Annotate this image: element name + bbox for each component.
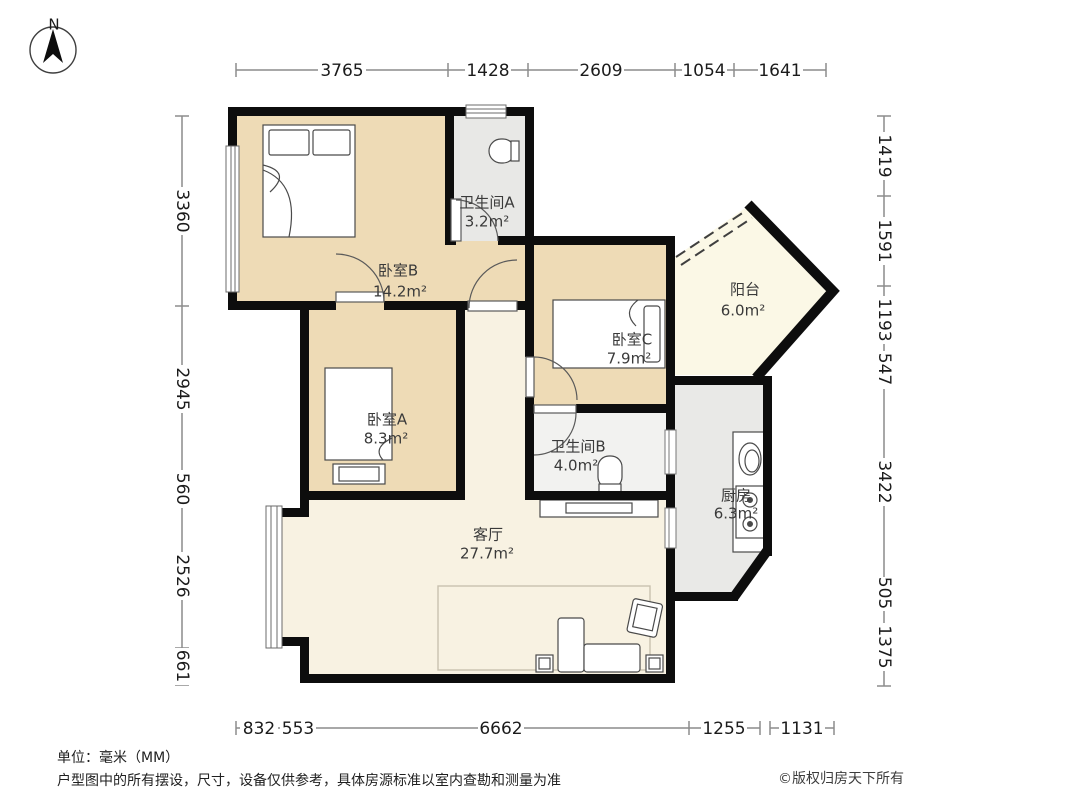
dim-bottom-4: 1255 [702, 719, 745, 739]
compass-needle-icon [43, 29, 63, 63]
room-label-bath-a: 卫生间A [459, 194, 515, 212]
corridor-floor [461, 306, 530, 496]
floorplan-canvas: 卧室B 14.2m² 卫生间A 3.2m² 阳台 6.0m² 卧室C 7.9m²… [0, 0, 1066, 742]
dim-top-2: 1428 [466, 61, 509, 81]
armchair [627, 598, 663, 637]
toilet-icon [598, 456, 622, 493]
dim-right-4: 547 [874, 353, 894, 385]
dim-top-3: 2609 [579, 61, 622, 81]
room-area-kitchen: 6.3m² [714, 505, 758, 523]
dim-bottom-2: 553 [282, 719, 314, 739]
pillow [269, 130, 309, 155]
dim-left-3: 560 [172, 473, 192, 505]
room-area-bath-b: 4.0m² [554, 457, 598, 475]
room-area-bath-a: 3.2m² [465, 213, 509, 231]
dim-left-2: 2945 [172, 367, 192, 410]
dim-right-3: 1193 [874, 298, 894, 341]
room-area-bedroom-c: 7.9m² [607, 350, 651, 368]
unit-note: 单位：毫米（MM） [57, 747, 179, 767]
window [466, 105, 506, 118]
tv-cabinet [540, 500, 658, 517]
room-label-bedroom-a: 卧室A [367, 411, 408, 429]
room-area-bedroom-b: 14.2m² [373, 283, 427, 301]
room-label-living: 客厅 [473, 526, 503, 544]
north-compass: N [30, 16, 76, 74]
room-label-balcony: 阳台 [730, 281, 760, 299]
vestibule-floor [450, 240, 530, 306]
window [226, 146, 239, 292]
room-label-bedroom-c: 卧室C [612, 331, 652, 349]
dim-top-1: 3765 [320, 61, 363, 81]
sliding-door [665, 430, 676, 474]
double-bed [263, 125, 355, 237]
pillow [313, 130, 350, 155]
dim-right-6: 505 [874, 577, 894, 609]
compass-north-label: N [48, 16, 59, 34]
dim-right-1: 1419 [874, 134, 894, 177]
room-label-bath-b: 卫生间B [550, 438, 605, 456]
room-label-kitchen: 厨房 [721, 487, 751, 505]
dimension-top: 3765 1428 2609 1054 1641 [236, 61, 826, 81]
dim-right-5: 3422 [874, 460, 894, 503]
dim-left-1: 3360 [172, 189, 192, 232]
dim-bottom-3: 6662 [479, 719, 522, 739]
room-area-balcony: 6.0m² [721, 302, 765, 320]
sliding-door [665, 508, 676, 548]
toilet-icon [489, 139, 519, 163]
dim-right-2: 1591 [874, 219, 894, 262]
copyright-notice: ©版权归房天下所有 [778, 768, 904, 788]
room-area-bedroom-a: 8.3m² [364, 430, 408, 448]
bay-window [266, 506, 282, 648]
dim-left-5: 661 [172, 650, 192, 682]
dim-top-5: 1641 [758, 61, 801, 81]
room-label-bedroom-b: 卧室B [378, 262, 418, 280]
dim-left-4: 2526 [172, 554, 192, 597]
sink-icon [739, 443, 761, 475]
dim-bottom-1: 832 [243, 719, 275, 739]
dimension-bottom: 832 553 6662 1255 1131 [236, 719, 834, 739]
floorplan-page: 卧室B 14.2m² 卫生间A 3.2m² 阳台 6.0m² 卧室C 7.9m²… [0, 0, 1066, 800]
disclaimer: 户型图中的所有摆设，尺寸，设备仅供参考，具体房源标准以室内查勘和测量为准 [57, 770, 561, 790]
dim-top-4: 1054 [682, 61, 725, 81]
dimension-right: 1419 1591 1193 547 3422 505 1375 [874, 116, 894, 686]
dim-right-7: 1375 [874, 625, 894, 668]
tv-icon [566, 503, 632, 513]
dim-bottom-5: 1131 [780, 719, 823, 739]
dimension-left: 3360 2945 560 2526 661 [172, 116, 192, 685]
room-area-living: 27.7m² [460, 545, 514, 563]
